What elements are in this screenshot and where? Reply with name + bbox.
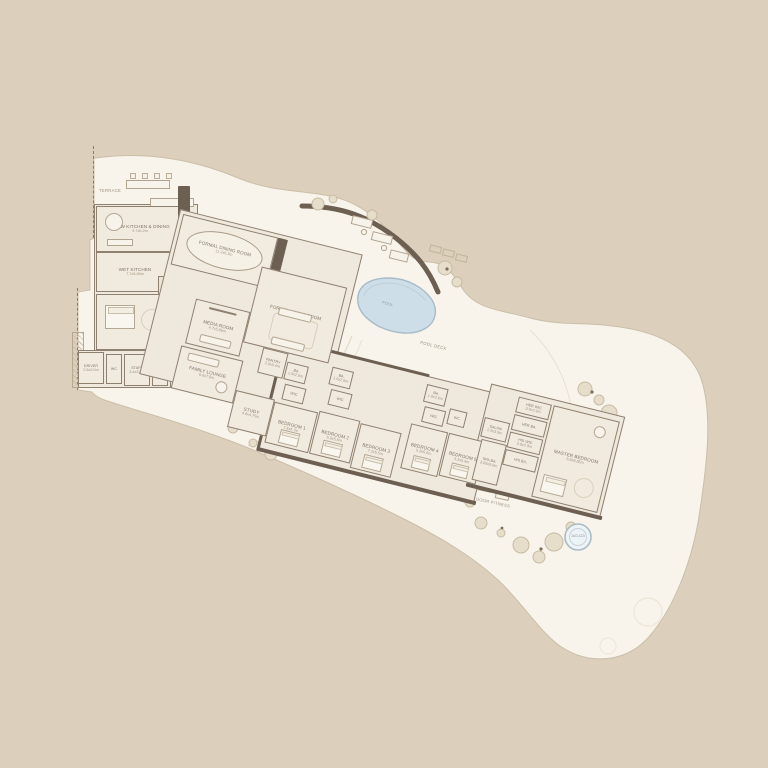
room-dims: 9.7x6.2m [132,230,148,234]
furniture-terrace-table [126,180,170,189]
bed-pillow [325,442,343,450]
furniture-rug [572,476,596,500]
bed-pillow [453,465,469,473]
shrub [312,198,324,210]
bed-icon [105,305,135,329]
shrub-dot [539,547,542,550]
shrub-dot [590,390,593,393]
furniture-round-table [214,380,229,395]
room-label: WC [111,367,117,371]
shrub [533,551,545,563]
shrub [578,382,592,396]
room-dims: 1.9x2.6m [427,394,443,401]
room-dims: 2.6x3.0m [83,369,99,373]
shrub [249,439,257,447]
shrub [329,195,337,203]
furniture-lounger [442,249,454,257]
bed-icon [540,474,568,497]
room-label: WIC [336,396,344,402]
shrub [452,277,462,287]
shrub-dot [501,527,504,530]
shrub [513,537,529,553]
bed-pillow [282,431,300,439]
shrub [594,395,604,405]
furniture-sofa [199,334,232,350]
furniture-chair-dot [130,173,136,179]
bed-pillow [365,456,383,464]
room-label: WIC [430,414,438,420]
room-label: WIC [290,391,298,397]
furniture-kitchen-island [107,239,133,246]
shrub [497,529,505,537]
bed-pillow [545,477,566,487]
room-dims: 1.9x2.6m [287,372,303,379]
furniture-chair-dot [166,173,172,179]
tv-screen [209,307,237,316]
room-label: HER BA. [521,422,537,430]
furniture-round-table [592,425,607,440]
furniture-dining-oval-table: FORMAL DINING ROOM 11.2x6.3m [182,224,266,278]
shrub [545,533,563,551]
shrub [475,517,487,529]
shrub [367,210,377,220]
furniture-chair-dot [154,173,160,179]
room-wc-a: WC [106,354,122,384]
jacuzzi-label: JACUZZI [567,534,589,538]
room-driver: DRIVER 2.6x3.0m [78,352,104,384]
bed-icon [411,455,432,472]
furniture-round-table [105,213,123,231]
room-dims: 7.7x5.85m [126,273,144,277]
bed-pillow [415,457,431,465]
furniture-lounger [455,254,467,262]
room-dims: 1.9x2.6m [333,377,349,384]
terrace-label: TERRACE [99,188,121,193]
room-label: HIS BA. [513,457,527,464]
shrub [438,261,452,275]
bed-pillow [108,307,134,313]
floor-plan-canvas: TERRACE POOL POOL DECK OUTDOOR FITNESS J… [0,0,768,768]
shrub-dot [445,267,448,270]
furniture-lounger [429,245,441,253]
furniture-chair-dot [142,173,148,179]
room-label: WC [453,415,460,420]
